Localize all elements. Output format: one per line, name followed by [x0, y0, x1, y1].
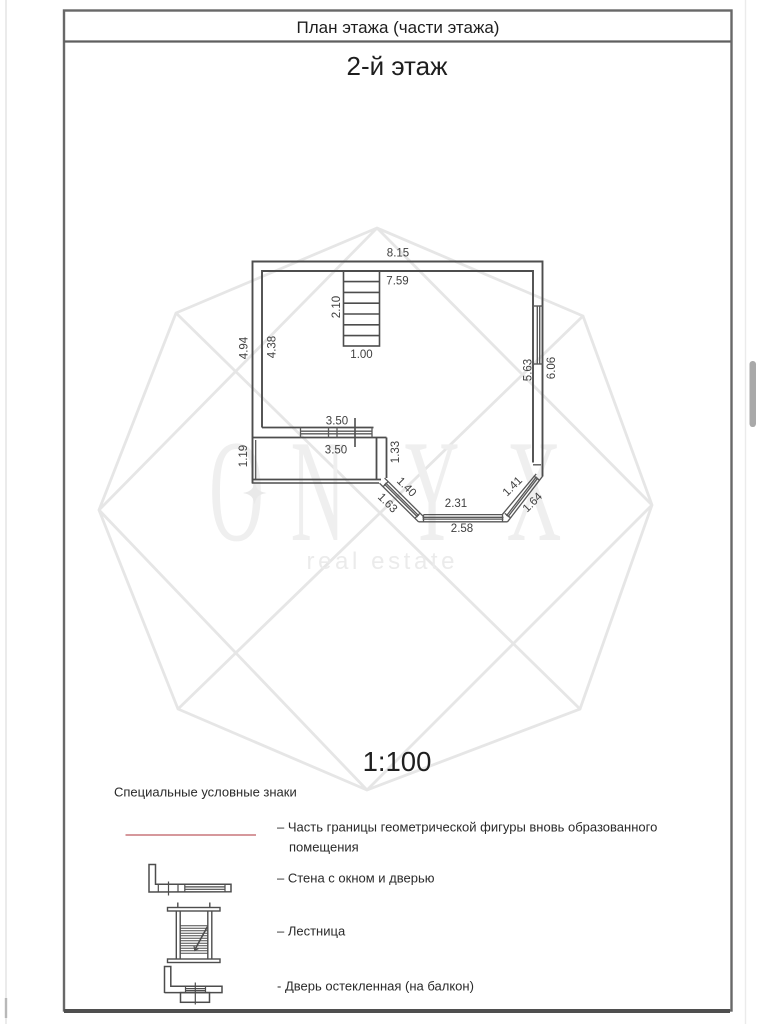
svg-text:4.38: 4.38 [267, 336, 279, 358]
svg-text:3.50: 3.50 [325, 445, 347, 457]
svg-text:– Лестница: – Лестница [277, 924, 346, 939]
svg-text:– Стена с окном и дверью: – Стена с окном и дверью [277, 871, 435, 886]
svg-text:- Дверь остекленная (на балкон: - Дверь остекленная (на балкон) [277, 979, 474, 994]
svg-text:2-й этаж: 2-й этаж [346, 51, 448, 81]
svg-text:Специальные условные знаки: Специальные условные знаки [114, 785, 297, 800]
svg-text:2.31: 2.31 [445, 498, 467, 510]
svg-text:7.59: 7.59 [386, 276, 408, 288]
svg-text:План этажа (части этажа): План этажа (части этажа) [297, 18, 500, 37]
svg-text:1.19: 1.19 [238, 445, 250, 467]
svg-text:1.00: 1.00 [350, 349, 372, 361]
svg-text:– Часть границы геометрической: – Часть границы геометрической фигуры вн… [277, 820, 657, 835]
svg-text:6.06: 6.06 [546, 357, 558, 379]
svg-text:2.58: 2.58 [451, 523, 473, 535]
svg-text:1:100: 1:100 [363, 746, 432, 777]
svg-text:1.33: 1.33 [390, 441, 402, 463]
svg-text:5.63: 5.63 [523, 359, 535, 381]
svg-text:4.94: 4.94 [239, 336, 251, 359]
svg-text:8.15: 8.15 [387, 248, 409, 260]
svg-text:2.10: 2.10 [331, 296, 343, 318]
svg-text:3.50: 3.50 [326, 416, 348, 428]
svg-text:real estate: real estate [307, 548, 457, 575]
svg-text:помещения: помещения [289, 840, 359, 855]
